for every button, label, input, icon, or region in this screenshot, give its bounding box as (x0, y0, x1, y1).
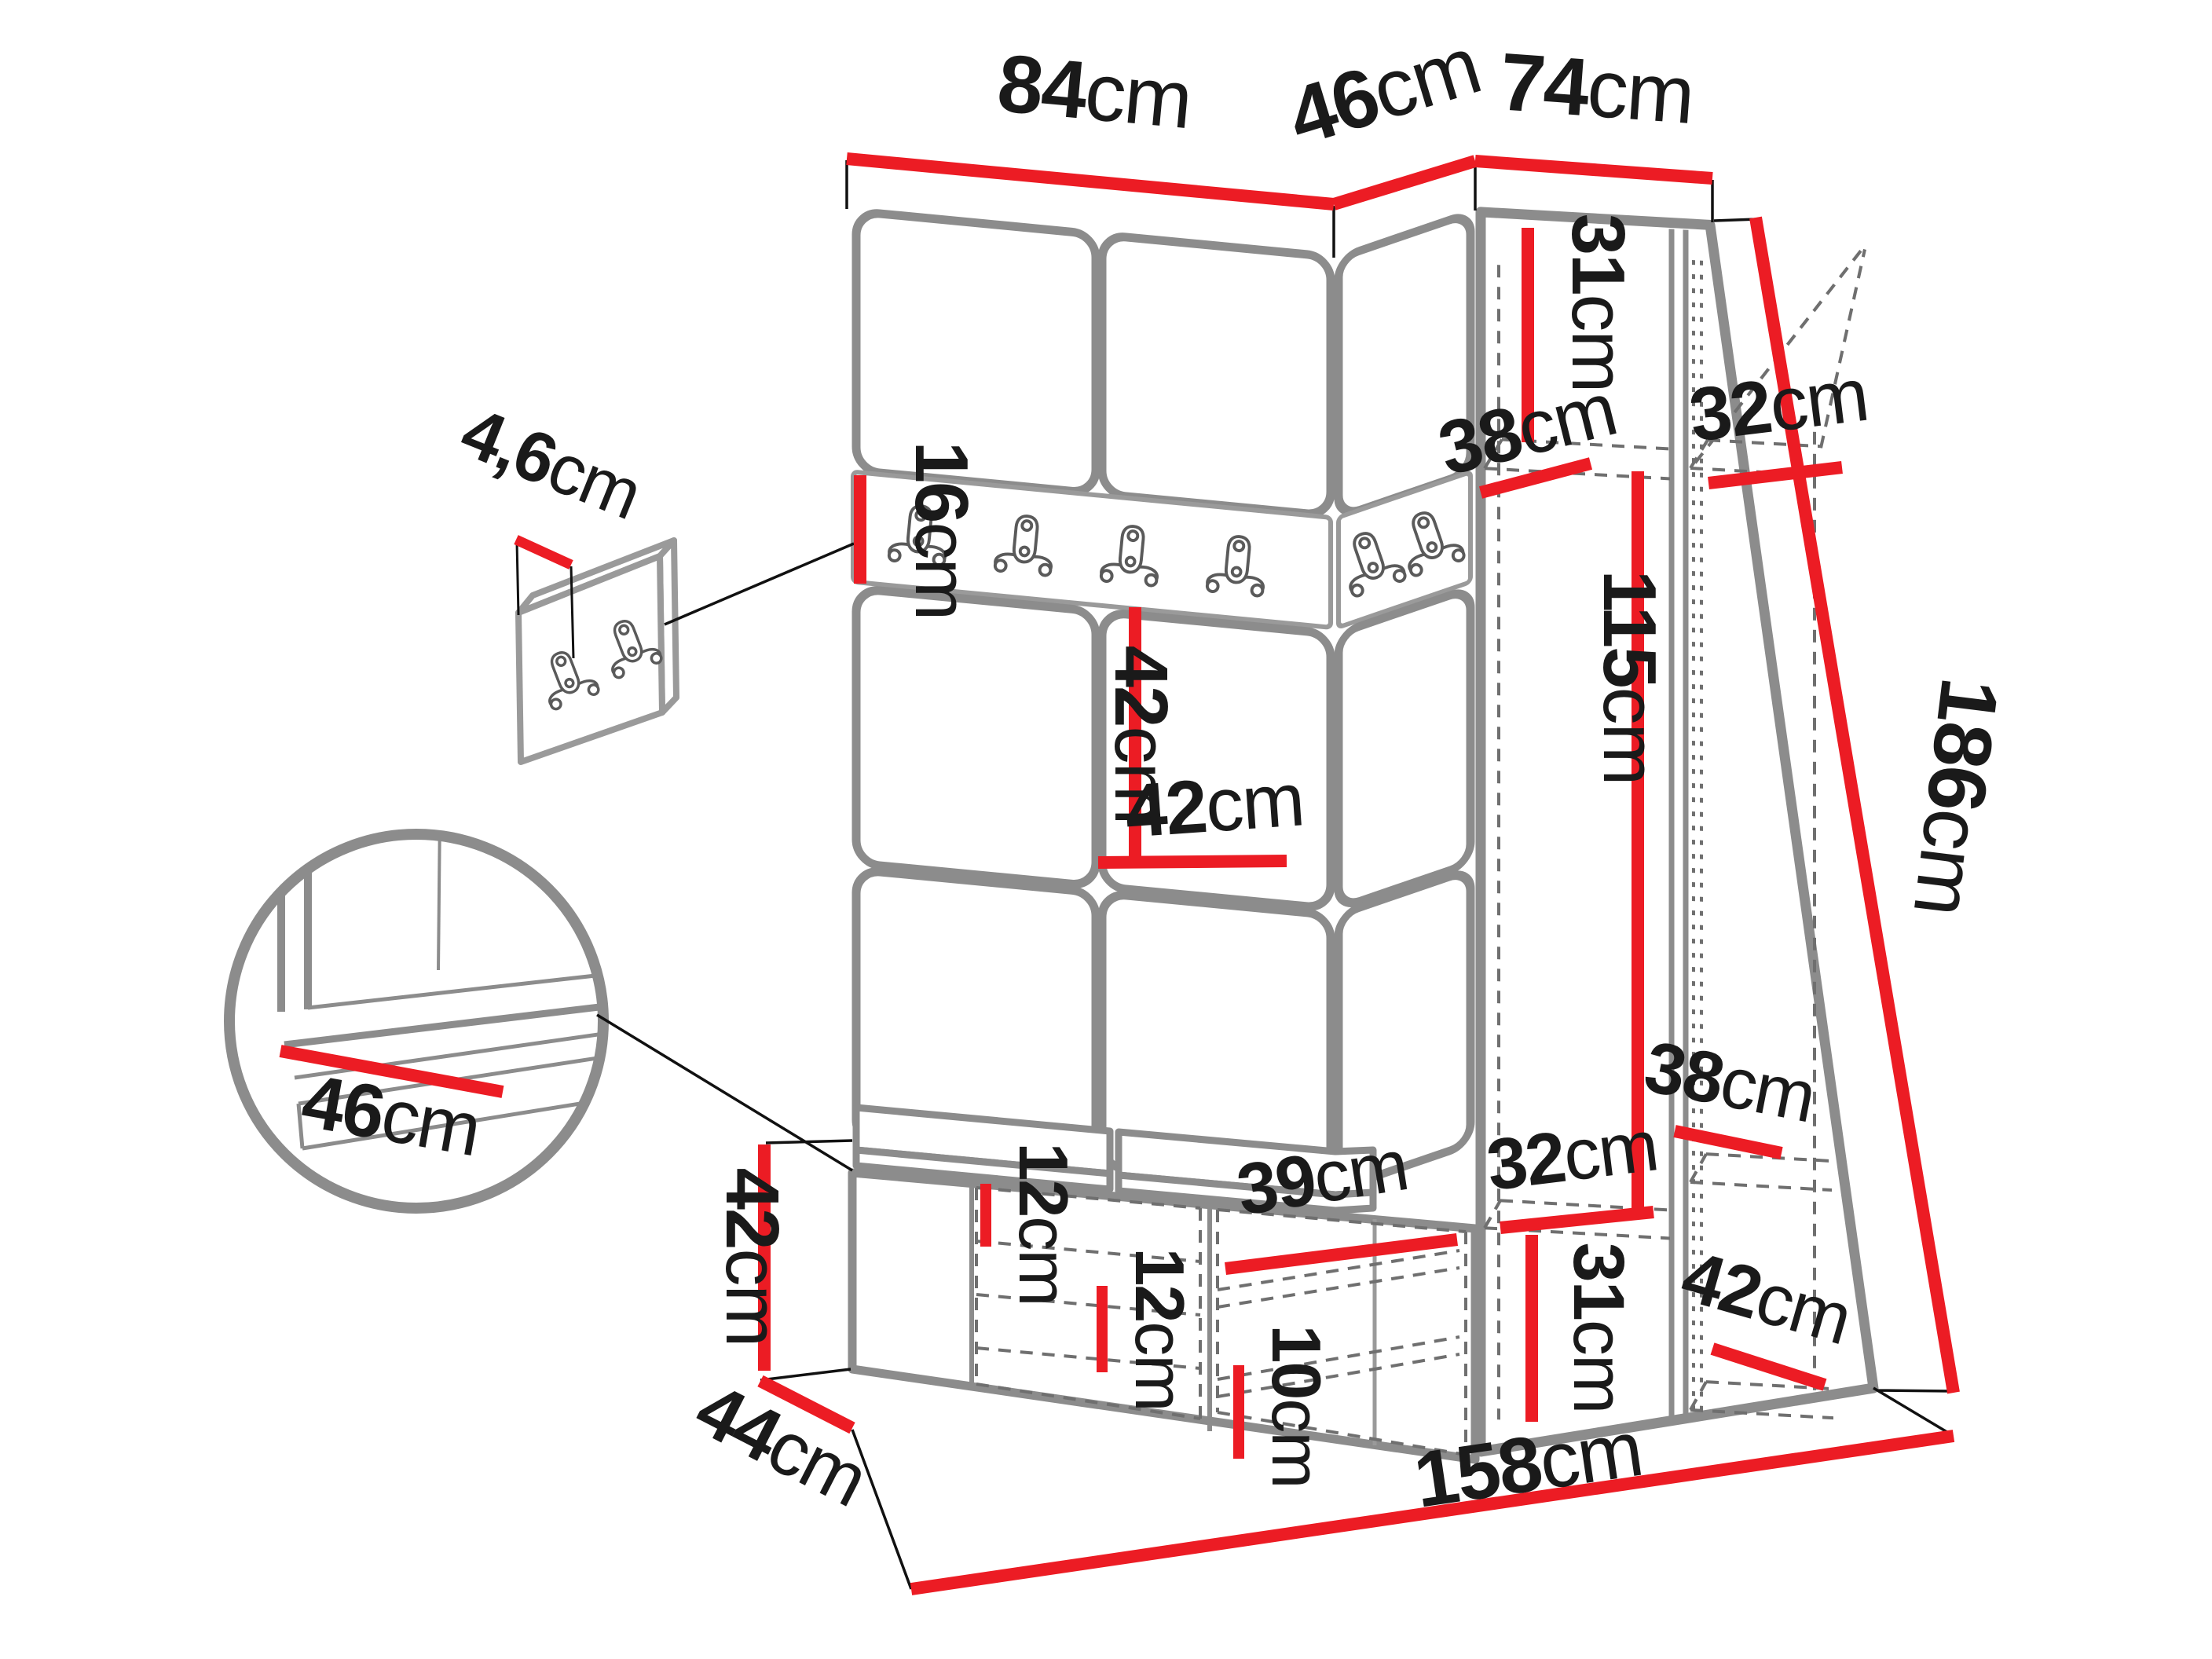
panel-front (518, 556, 662, 762)
dim-label-10cm: 10cm (1258, 1324, 1335, 1487)
ext-186-bottom (1873, 1388, 1954, 1434)
dim-label-74cm: 74cm (1496, 36, 1696, 141)
pointer-circle-to-bench (597, 1015, 852, 1170)
upholstered-panel (856, 588, 1096, 886)
upholstered-panel (1339, 588, 1470, 909)
dim-label-12cm-a: 12cm (1005, 1142, 1082, 1305)
dim-label-42cm-left: 42cm (710, 1168, 794, 1346)
dim-label-31cm-low: 31cm (1558, 1243, 1639, 1413)
small-hook-panel (518, 540, 676, 762)
dim-label-31cm-top: 31cm (1556, 214, 1640, 392)
dim-label-186cm: 186cm (1896, 673, 2016, 920)
dim-label-12cm-b: 12cm (1121, 1247, 1199, 1410)
dim-label-42cm-horiz: 42cm (1122, 757, 1306, 854)
dim-label-46cm-corner: 46cm (1278, 20, 1489, 163)
diagram-stage: 84cm 46cm 74cm 4,6cm 16cm 31cm 38cm 32cm… (0, 0, 2212, 1659)
upholstered-panel (1102, 235, 1331, 516)
detail-panel-seam (438, 813, 440, 970)
dim-line-46cm-corner (1334, 161, 1475, 204)
corner-panel-section (1339, 213, 1470, 1189)
dim-line-74cm (1475, 161, 1712, 178)
dim-label-16cm: 16cm (899, 441, 983, 620)
pointer-panel-to-rail (665, 544, 854, 624)
dim-label-115cm: 115cm (1588, 570, 1672, 785)
dim-line-4-6cm (516, 540, 571, 565)
left-panel-section (853, 211, 1331, 1189)
ext-74-end (1712, 180, 1757, 222)
dim-label-4-6cm: 4,6cm (451, 393, 651, 535)
dimension-diagram: 84cm 46cm 74cm 4,6cm 16cm 31cm 38cm 32cm… (0, 0, 2212, 1659)
dim-line-42cm-horiz (1098, 861, 1287, 862)
dim-line-84cm (847, 159, 1334, 204)
dim-label-84cm: 84cm (994, 38, 1195, 146)
